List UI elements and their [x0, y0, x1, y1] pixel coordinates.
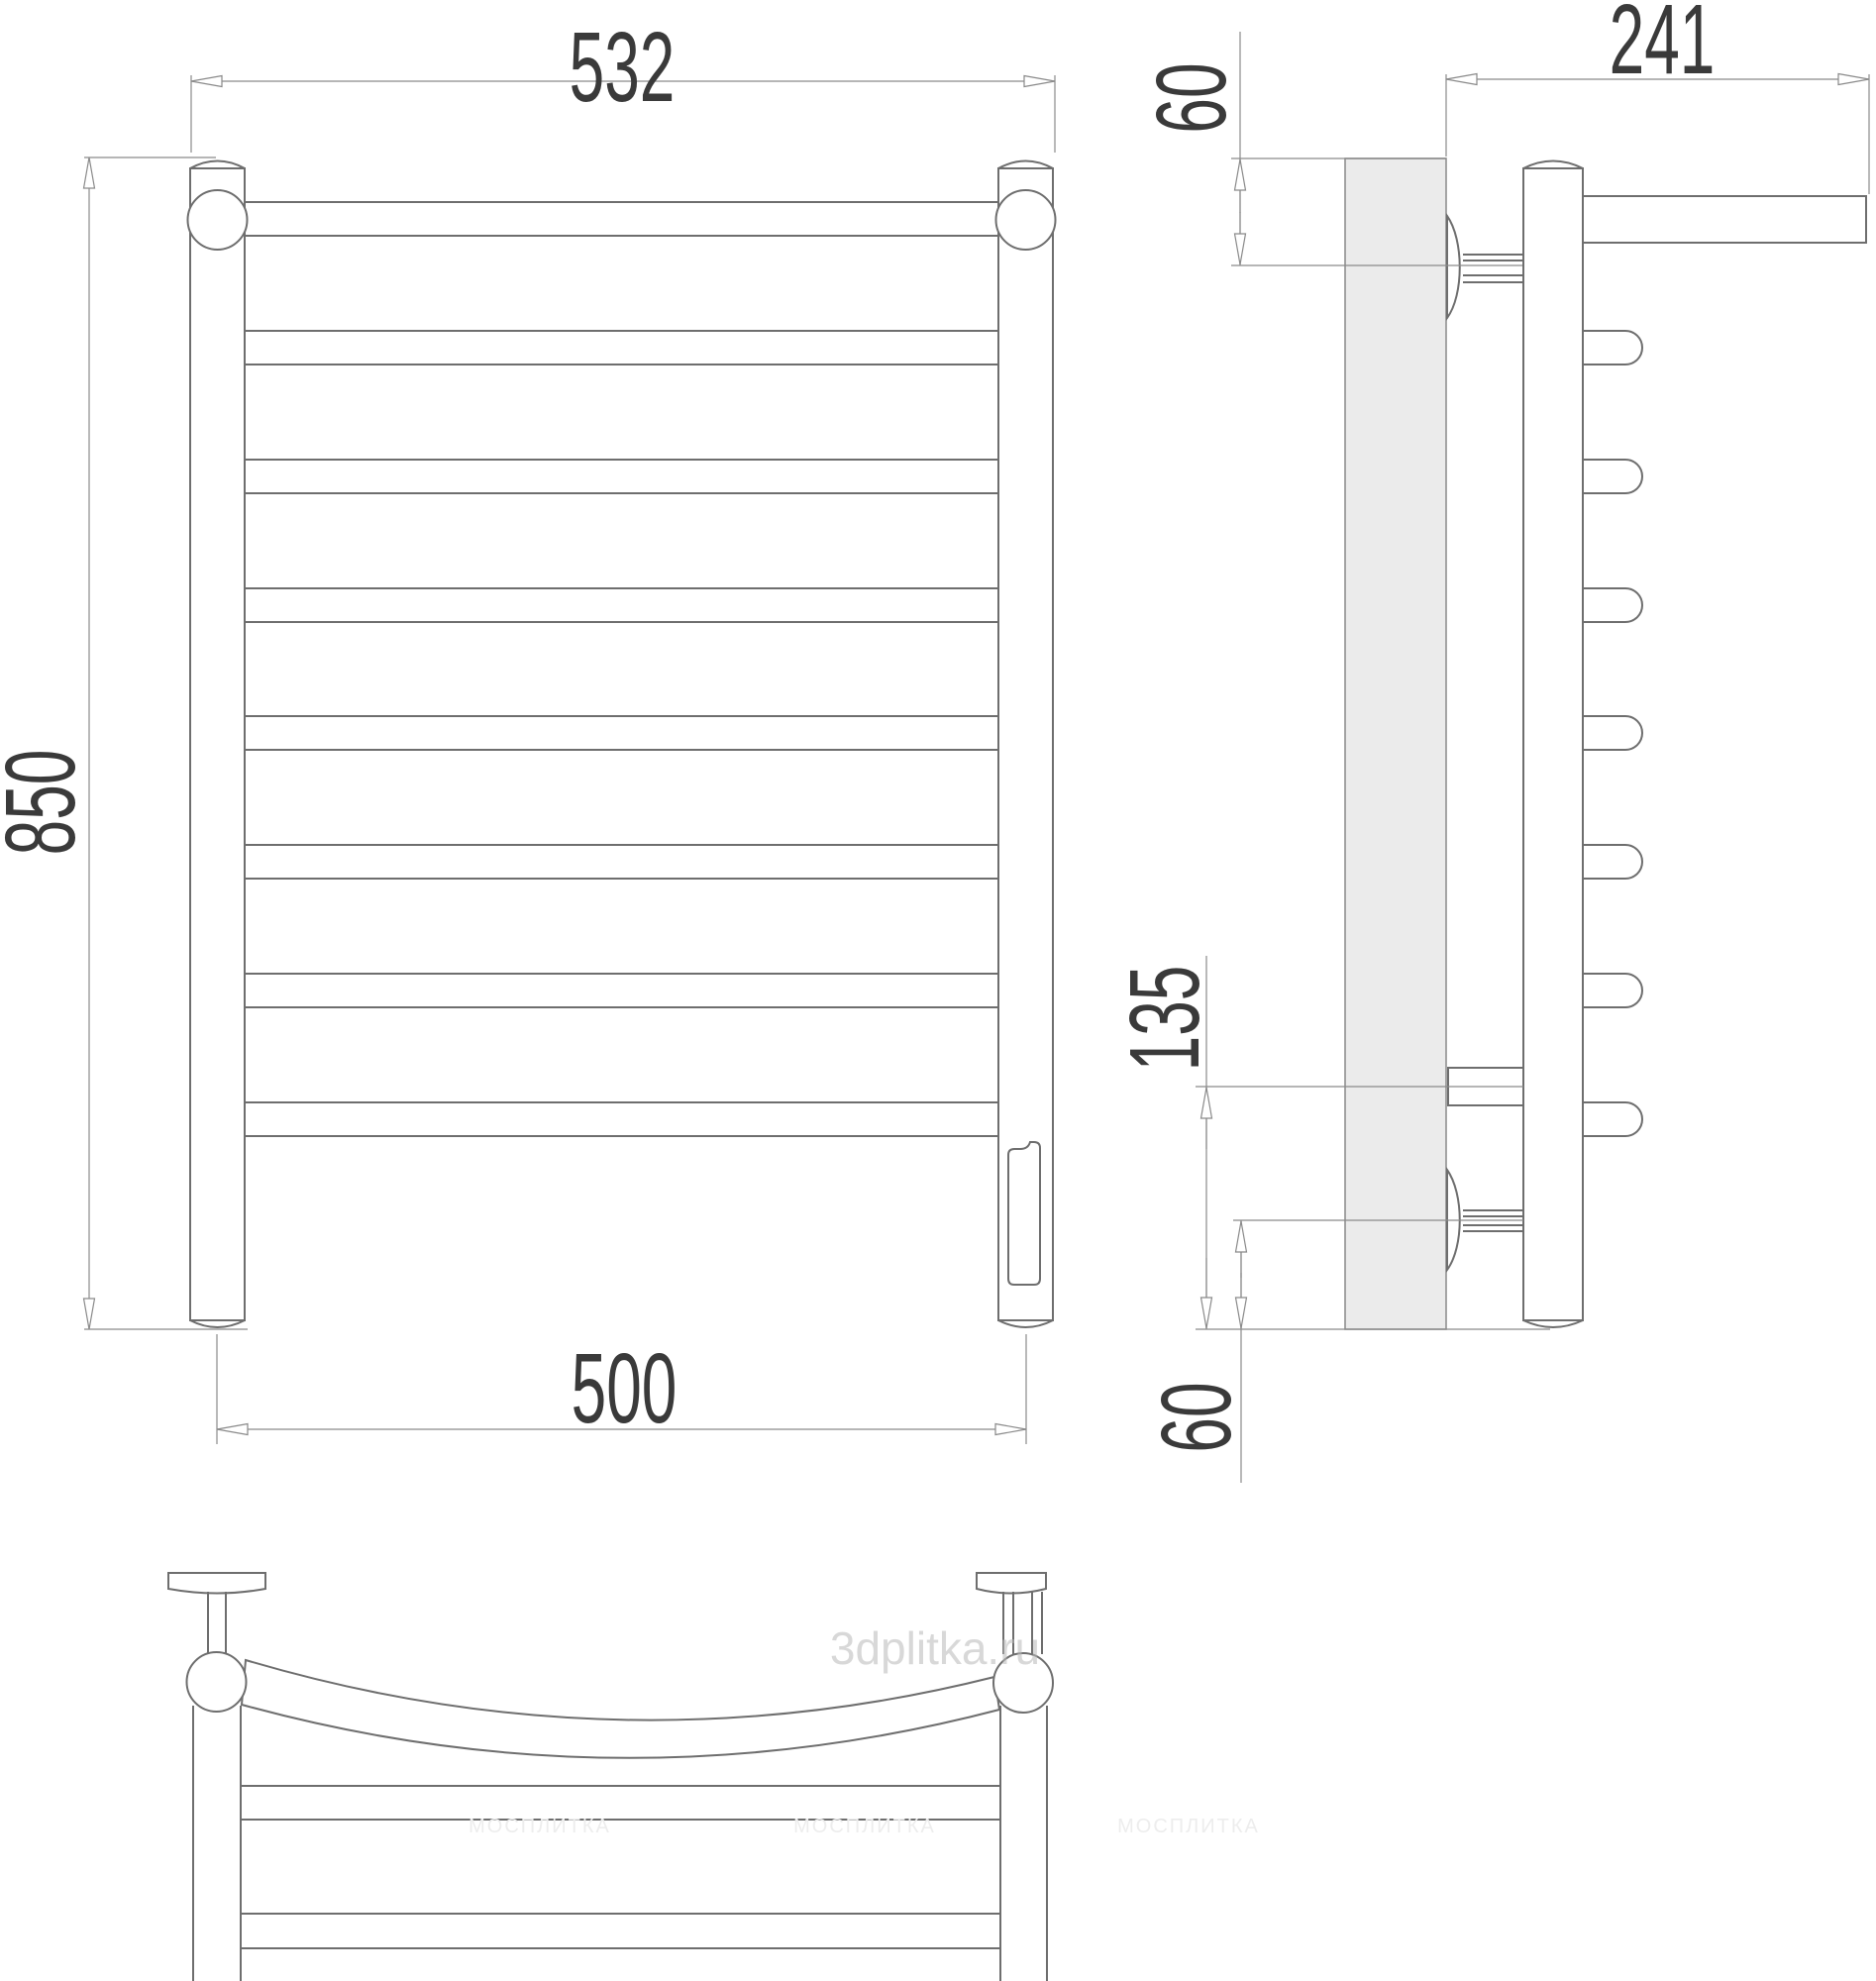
towel-rail-drawing: 532 850 500 241 60: [0, 0, 1876, 1981]
rung-stub-4: [1583, 716, 1642, 750]
dim-label-241: 241: [1610, 0, 1716, 94]
curved-rung-plan: [242, 1660, 999, 1758]
left-post: [190, 161, 245, 1328]
dim-front-width-bottom: 500: [217, 1332, 1026, 1444]
rung-3: [245, 460, 998, 493]
dim-label-60-top: 60: [1135, 62, 1246, 133]
bracket-top-flange: [1447, 216, 1460, 318]
front-view: [188, 161, 1056, 1328]
dim-side-connection-height: 135: [1108, 956, 1523, 1329]
watermark-main: 3dplitka.ru: [830, 1622, 1040, 1674]
right-post: [998, 161, 1053, 1328]
right-post-top-cap: [998, 161, 1053, 169]
bracket-top-stem: [1463, 255, 1523, 282]
watermark-tile-1: МОСПЛИТКА: [469, 1816, 611, 1837]
dim-side-depth: 241: [1446, 0, 1869, 194]
dim-side-top-offset: 60: [1135, 32, 1522, 265]
side-post: [1523, 161, 1583, 1328]
rung-1: [245, 202, 998, 236]
plan-flange-right: [977, 1573, 1046, 1594]
rung-4: [245, 588, 998, 622]
dim-label-135: 135: [1108, 966, 1219, 1072]
dim-label-500: 500: [572, 1332, 677, 1443]
top-rail-side: [1583, 196, 1866, 243]
side-rung-stubs: [1583, 331, 1642, 1136]
plan-flange-left: [168, 1573, 265, 1594]
dim-label-60-bottom: 60: [1140, 1382, 1251, 1452]
right-post-bottom-cap: [998, 1320, 1053, 1327]
rung-stub-6: [1583, 974, 1642, 1007]
front-rungs: [245, 202, 998, 1136]
heater-switch-panel: [1008, 1142, 1040, 1285]
rung-8: [245, 1102, 998, 1136]
plan-joint-circle-left: [187, 1652, 247, 1712]
rung-2: [245, 331, 998, 365]
wall-section: [1345, 158, 1446, 1329]
dim-front-width-top: 532: [191, 11, 1055, 153]
weld-circle-right: [996, 190, 1056, 250]
plan-right-post-tube: [1000, 1706, 1047, 1981]
rung-stub-7: [1583, 1102, 1642, 1136]
side-post-bottom-cap: [1523, 1320, 1583, 1327]
left-post-top-cap: [190, 161, 245, 169]
rung-7: [245, 974, 998, 1007]
rung-6: [245, 845, 998, 879]
watermark-tile-3: МОСПЛИТКА: [1117, 1816, 1260, 1837]
watermark-tile-2: МОСПЛИТКА: [793, 1816, 936, 1837]
straight-rungs-plan: [241, 1786, 1000, 1948]
bracket-top: [1447, 216, 1523, 318]
plan-bracket-left: [168, 1573, 265, 1654]
rung-stub-1: [1583, 331, 1642, 365]
plan-left-post-tube: [193, 1706, 241, 1981]
side-post-top-cap: [1523, 161, 1583, 169]
weld-circle-left: [188, 190, 248, 250]
side-view: [1345, 158, 1866, 1329]
rung-stub-3: [1583, 588, 1642, 622]
dim-label-532: 532: [570, 11, 676, 122]
rung-5: [245, 716, 998, 750]
rung-stub-2: [1583, 460, 1642, 493]
left-post-bottom-cap: [190, 1320, 245, 1327]
dim-label-850: 850: [0, 750, 95, 856]
drawing-canvas: 532 850 500 241 60: [0, 0, 1876, 1981]
rung-stub-5: [1583, 845, 1642, 879]
